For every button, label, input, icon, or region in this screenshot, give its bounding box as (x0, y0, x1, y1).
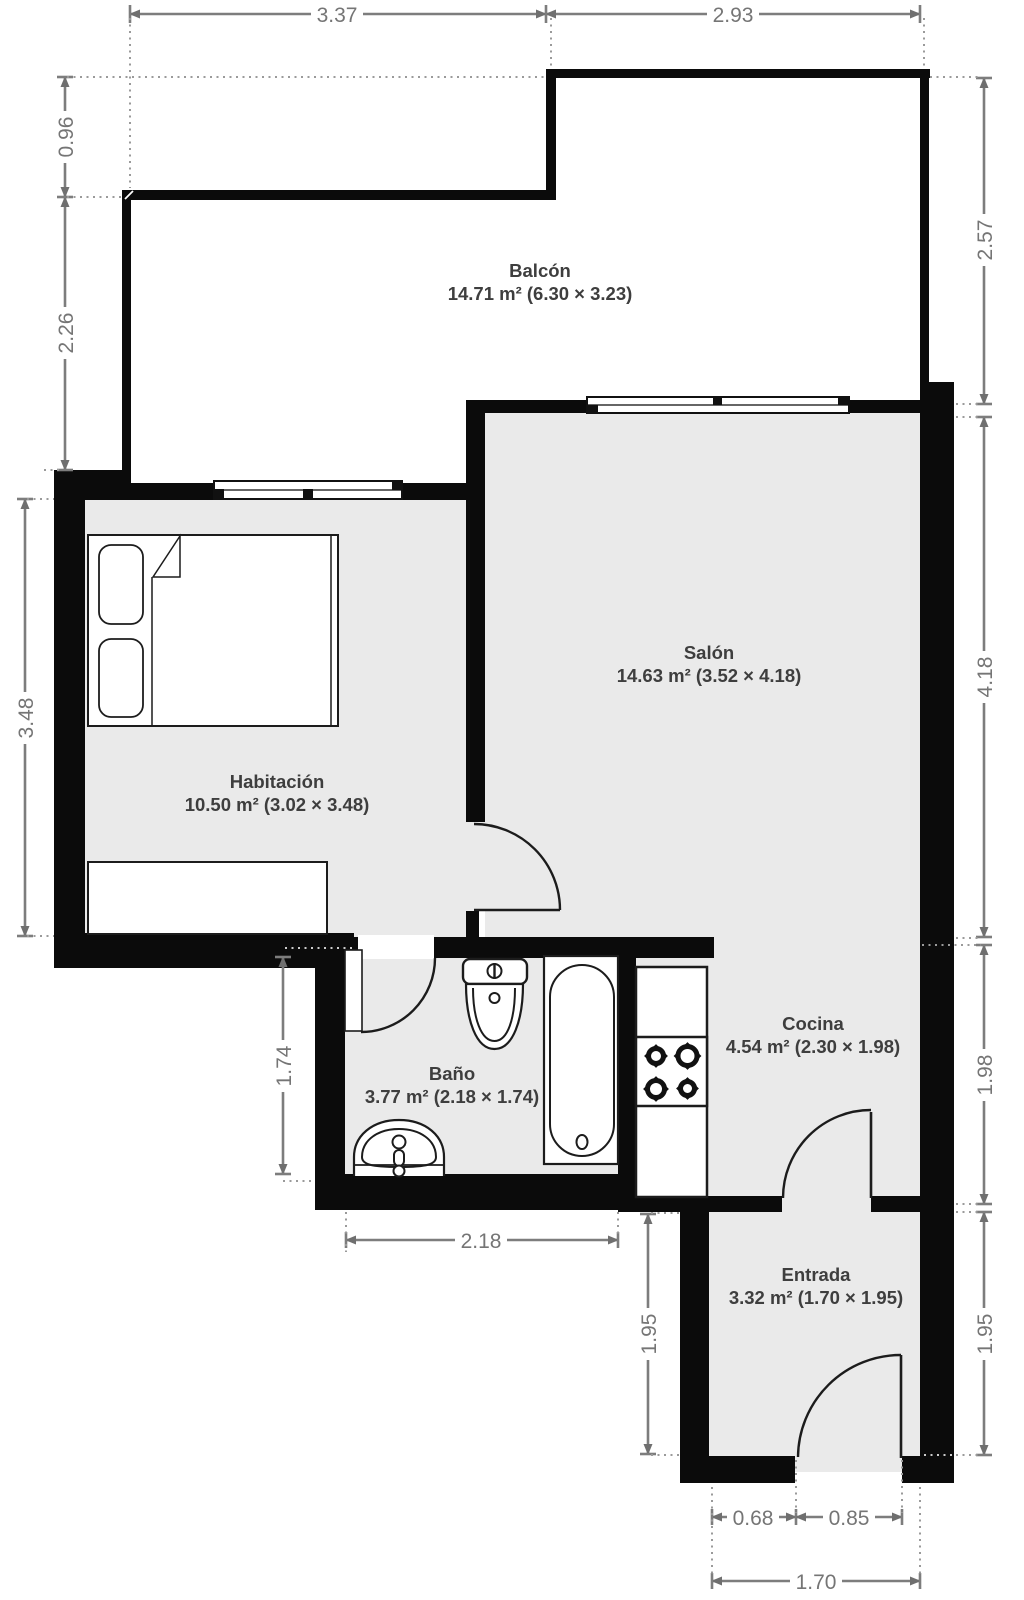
svg-text:2.57: 2.57 (974, 220, 997, 261)
svg-text:1.98: 1.98 (974, 1055, 997, 1096)
svg-text:2.26: 2.26 (55, 313, 78, 354)
svg-text:2.18: 2.18 (461, 1230, 502, 1253)
svg-text:14.63 m² (3.52 × 4.18): 14.63 m² (3.52 × 4.18) (617, 665, 802, 686)
svg-text:2.93: 2.93 (713, 4, 754, 27)
svg-text:4.54 m² (2.30 × 1.98): 4.54 m² (2.30 × 1.98) (726, 1036, 900, 1057)
svg-text:1.95: 1.95 (974, 1314, 997, 1355)
svg-text:Baño: Baño (429, 1063, 475, 1084)
svg-text:Cocina: Cocina (782, 1013, 844, 1034)
svg-text:Salón: Salón (684, 642, 734, 663)
svg-text:Habitación: Habitación (230, 771, 325, 792)
svg-text:3.77 m² (2.18 × 1.74): 3.77 m² (2.18 × 1.74) (365, 1086, 539, 1107)
svg-text:3.37: 3.37 (317, 4, 358, 27)
svg-text:Entrada: Entrada (782, 1264, 852, 1285)
svg-text:0.85: 0.85 (829, 1507, 870, 1530)
svg-text:10.50 m² (3.02 × 3.48): 10.50 m² (3.02 × 3.48) (185, 794, 370, 815)
svg-text:1.74: 1.74 (273, 1045, 296, 1086)
svg-text:4.18: 4.18 (974, 657, 997, 698)
svg-text:Balcón: Balcón (509, 260, 571, 281)
svg-text:1.70: 1.70 (796, 1571, 837, 1594)
svg-text:3.48: 3.48 (15, 698, 38, 739)
svg-text:0.68: 0.68 (733, 1507, 774, 1530)
svg-text:1.95: 1.95 (638, 1314, 661, 1355)
svg-text:0.96: 0.96 (55, 117, 78, 158)
svg-text:3.32 m² (1.70 × 1.95): 3.32 m² (1.70 × 1.95) (729, 1287, 903, 1308)
svg-text:14.71 m² (6.30 × 3.23): 14.71 m² (6.30 × 3.23) (448, 283, 633, 304)
